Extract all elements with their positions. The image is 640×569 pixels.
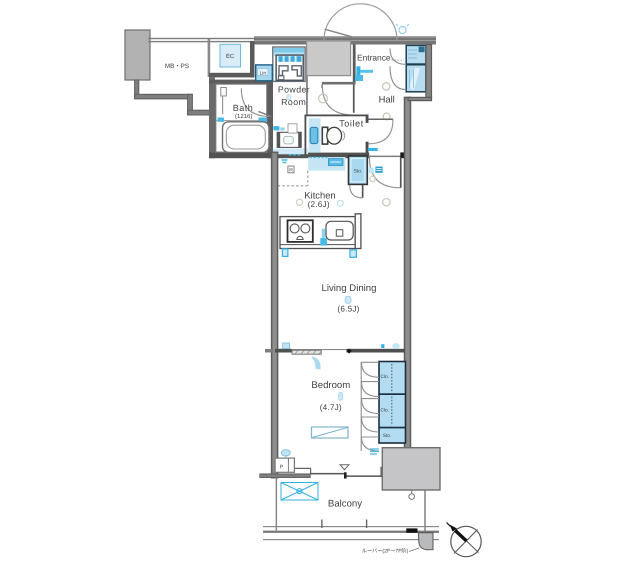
svg-text:Sto.: Sto. [353,168,362,174]
svg-text:P: P [280,465,284,471]
svg-text:(1216): (1216) [235,113,252,120]
svg-text:Room: Room [281,97,306,107]
svg-text:(6.5J): (6.5J) [337,305,359,314]
svg-text:Balcony: Balcony [328,499,362,510]
svg-text:ルーバー(2F〜7F阶): ルーバー(2F〜7F阶) [362,547,409,554]
svg-text:Kitchen: Kitchen [304,189,335,200]
svg-text:Sto.: Sto. [383,433,392,439]
svg-text:Clo.: Clo. [381,408,390,414]
svg-text:Bedroom: Bedroom [311,380,350,391]
svg-text:R: R [289,168,293,174]
svg-text:Bath: Bath [233,103,254,113]
svg-text:Living Dining: Living Dining [322,283,377,294]
svg-text:EC: EC [226,53,235,60]
svg-text:MB・PS: MB・PS [165,63,189,70]
svg-text:(4.7J): (4.7J) [320,403,342,412]
svg-text:Clo.: Clo. [381,374,390,380]
svg-text:(2.6J): (2.6J) [308,200,330,209]
svg-text:Lin: Lin [260,70,267,76]
svg-text:Toilet: Toilet [339,118,364,128]
svg-text:Entrance: Entrance [357,53,391,63]
svg-text:Powder: Powder [278,85,310,95]
svg-text:Hall: Hall [379,93,395,104]
